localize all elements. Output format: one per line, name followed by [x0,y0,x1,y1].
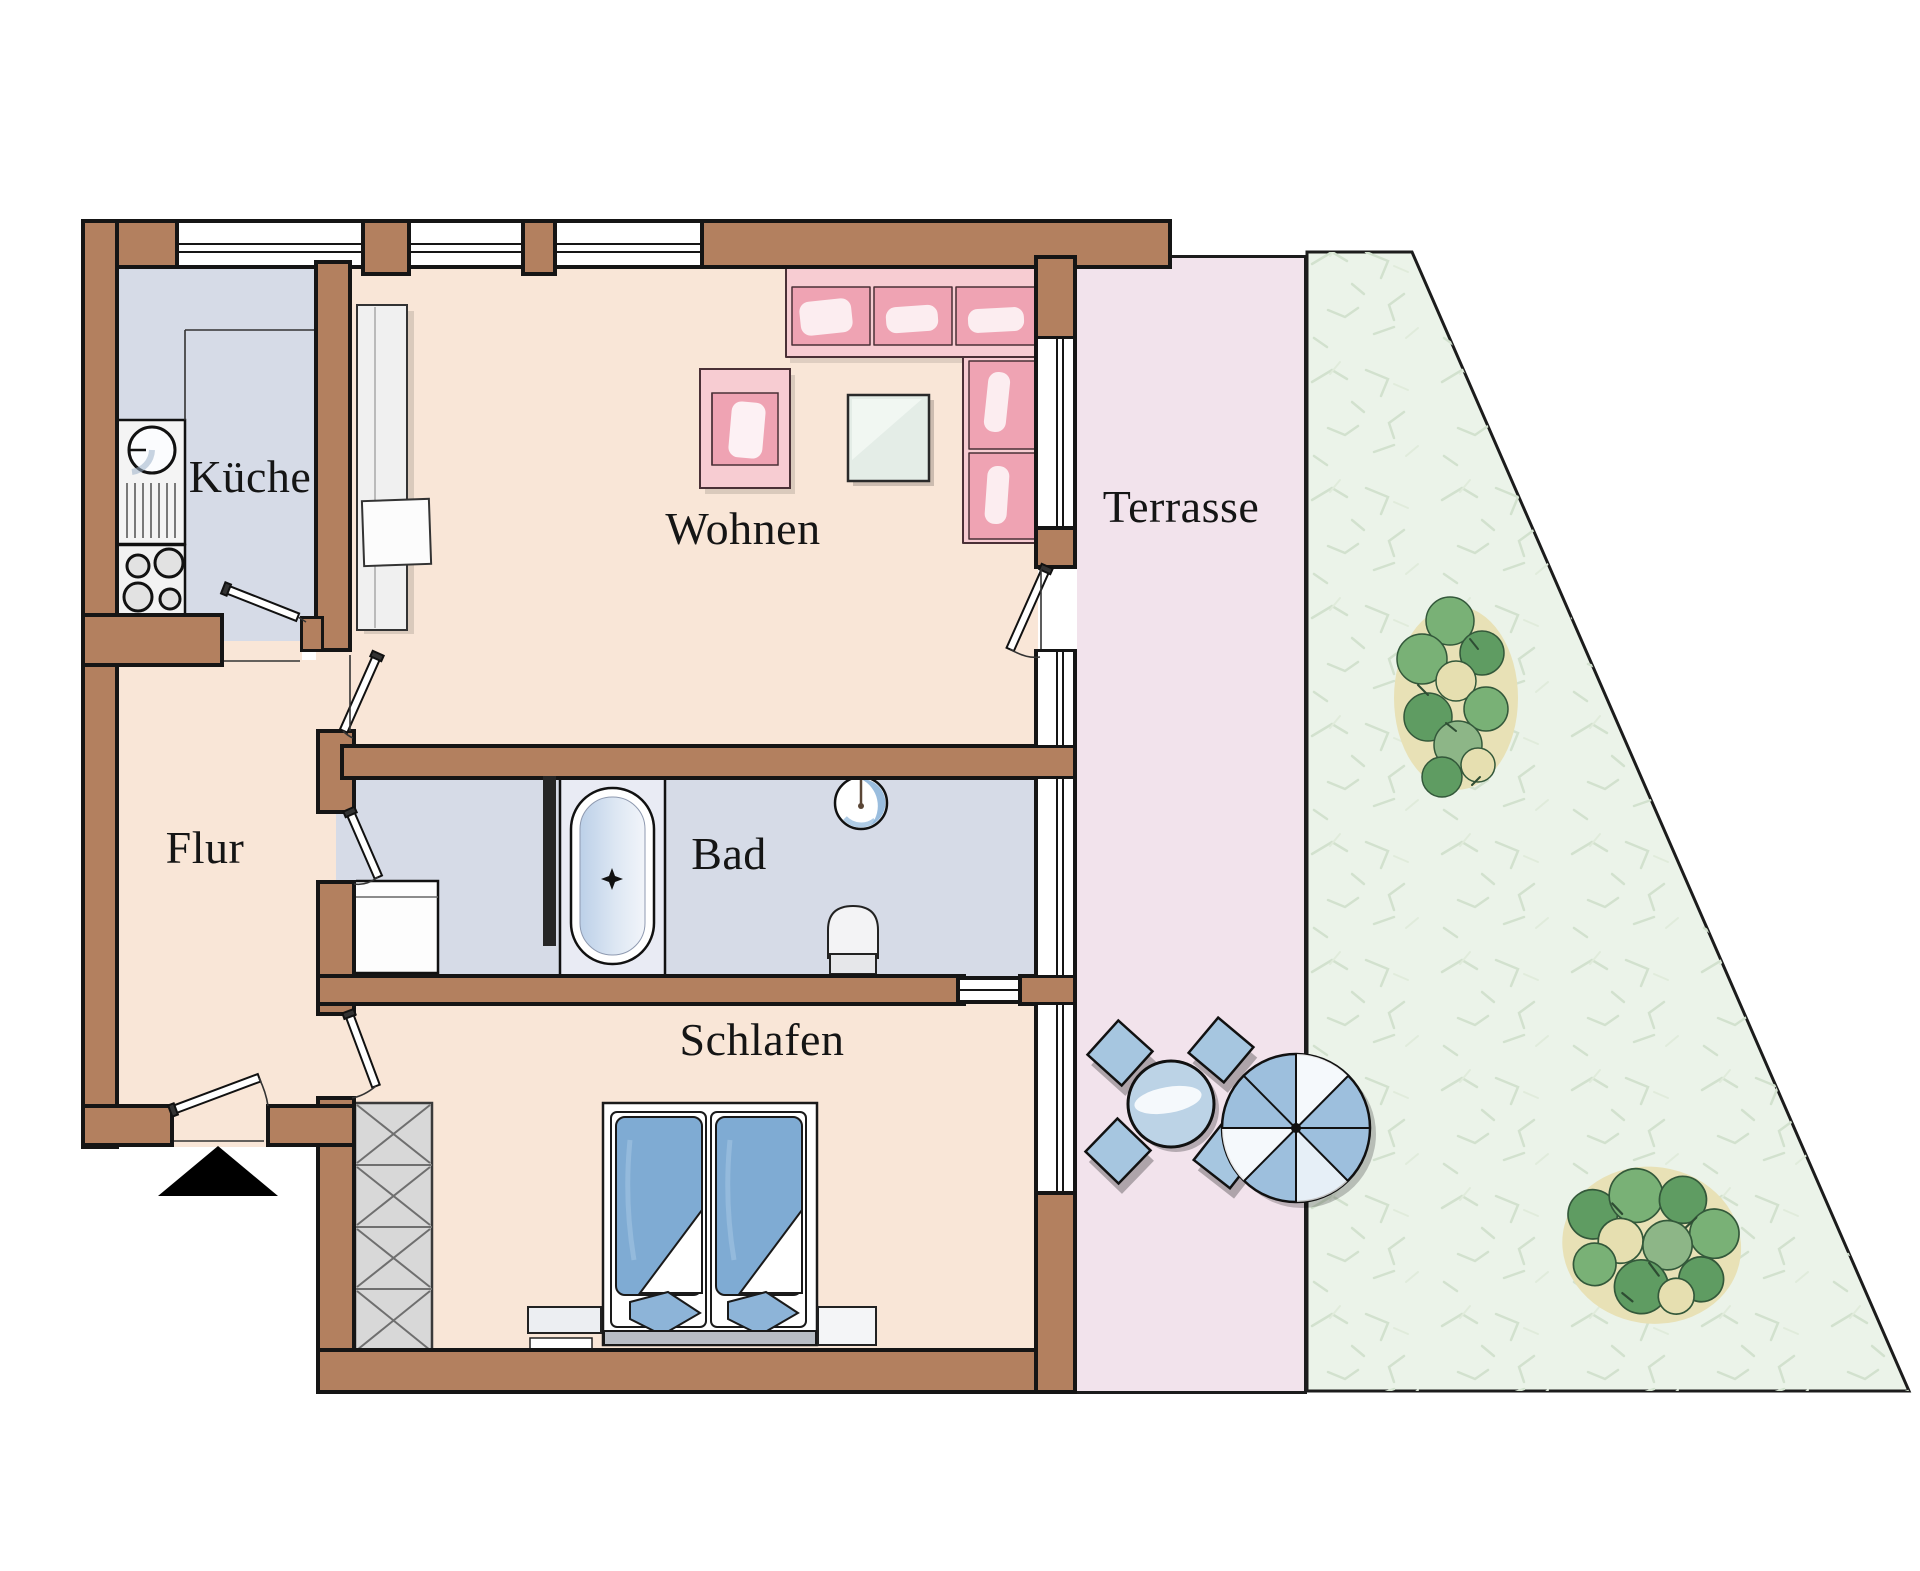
room-label-schlafen: Schlafen [680,1017,845,1063]
hall-floor [115,660,322,1110]
terrace-door-opening [1038,569,1073,653]
wall-top-right [700,219,1172,269]
wall-wc-divider [543,776,556,946]
wall-top-pier-1 [361,219,411,276]
floor-plan: Küche Wohnen Flur Bad Schlafen Terrasse [0,0,1920,1571]
wall-bedroom-bottom [316,1348,1077,1394]
living-window-right [549,219,708,269]
kitchen-floor [115,262,320,622]
room-label-wohnen: Wohnen [665,506,820,552]
wall-top-pier-2 [521,219,557,276]
wall-entrance-left [81,1104,174,1147]
wc-door-floor [316,814,336,880]
bath-floor [546,778,1040,978]
wall-bath-bedroom [316,974,966,1006]
wall-entrance-right [266,1104,356,1147]
living-door-floor [316,652,356,733]
entrance-door-floor [174,1108,266,1147]
bedroom-door-floor [316,1016,356,1096]
wall-living-bath [340,744,1077,780]
wall-left [81,219,119,1149]
wall-right-bottom [1034,1191,1077,1394]
wc-door-floor2 [336,814,356,880]
garden [1307,252,1909,1391]
room-label-terrasse: Terrasse [1103,484,1260,530]
wc-floor [350,778,546,978]
bedroom-terrace-window [1034,1002,1077,1195]
living-terrace-window-2 [1034,649,1077,748]
living-window-left [403,219,529,269]
kitchen-door-jamb [300,616,324,652]
room-label-bad: Bad [691,831,767,877]
terrace-area [1077,255,1307,1394]
bath-bedroom-window [956,976,1026,1004]
room-label-flur: Flur [166,825,245,871]
wall-kitchen-bottom [81,613,224,667]
wall-right-pier [1034,526,1077,569]
kitchen-door-floor [220,617,302,641]
bath-terrace-window [1034,776,1077,978]
living-terrace-window-1 [1034,336,1077,530]
wall-kitchen-right [314,260,352,652]
room-label-kueche: Küche [189,454,312,500]
entrance-triangle-icon [158,1146,278,1196]
wall-right-top [1034,255,1077,340]
kitchen-door-floor2 [220,641,302,665]
bush-icon [1394,597,1518,797]
bush-icon [1552,1155,1751,1335]
